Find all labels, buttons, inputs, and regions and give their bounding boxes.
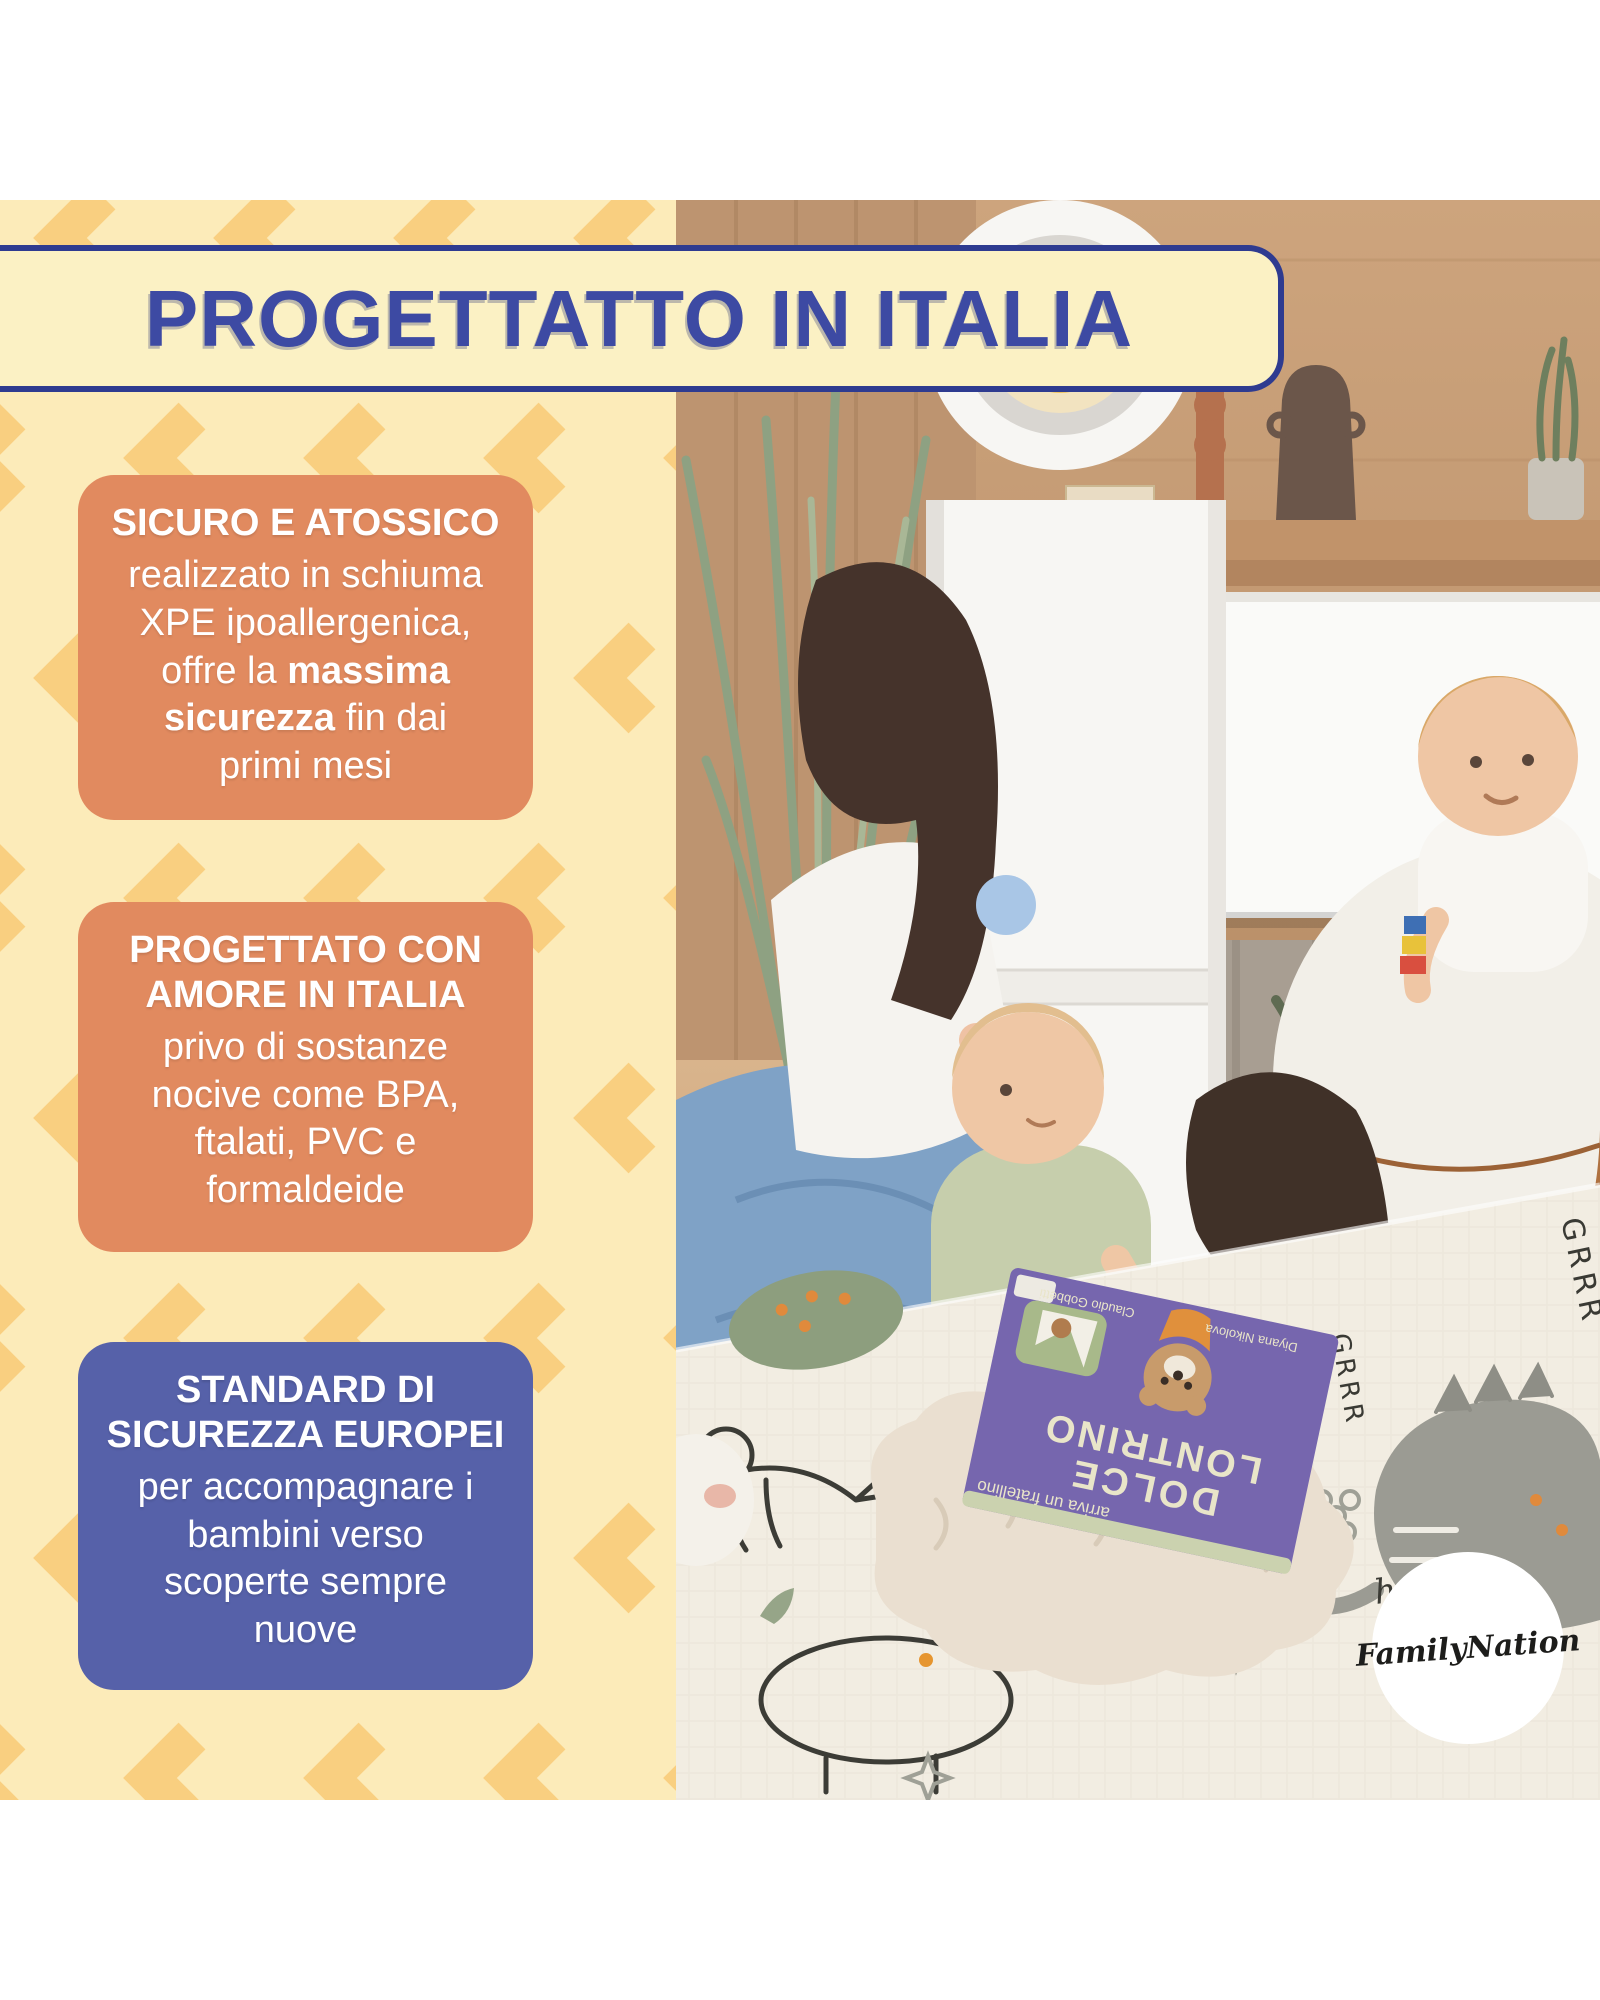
photo-scene: GRRR GRRR hello Hi	[676, 200, 1600, 1800]
banner-title: PROGETTATTO IN ITALIA	[145, 273, 1133, 365]
toddler-shirt	[1418, 812, 1588, 972]
product-infographic-poster: GRRR GRRR hello Hi	[0, 0, 1600, 2000]
card-title: SICURO E ATOSSICO	[94, 501, 517, 546]
poster-content: GRRR GRRR hello Hi	[0, 200, 1600, 1800]
card-body: realizzato in schiuma XPE ipoallergenica…	[94, 552, 517, 791]
card-body: privo di sostanze nocive come BPA, ftala…	[94, 1024, 517, 1216]
card-sicuro-e-atossico: SICURO E ATOSSICO realizzato in schiuma …	[78, 475, 533, 820]
hair-bow	[976, 875, 1036, 935]
card-standard-sicurezza: STANDARD DI SICUREZZA EUROPEI per accomp…	[78, 1342, 533, 1690]
card-title: STANDARD DI SICUREZZA EUROPEI	[94, 1368, 517, 1458]
baby-face	[952, 1012, 1104, 1164]
bottom-white-band	[0, 1800, 1600, 2000]
card-title: PROGETTATO CON AMORE IN ITALIA	[94, 928, 517, 1018]
card-body: per accompagnare i bambini verso scopert…	[94, 1464, 517, 1656]
card-progettato-con-amore: PROGETTATO CON AMORE IN ITALIA privo di …	[78, 902, 533, 1252]
top-white-band	[0, 0, 1600, 200]
banner: PROGETTATTO IN ITALIA	[0, 245, 1284, 392]
